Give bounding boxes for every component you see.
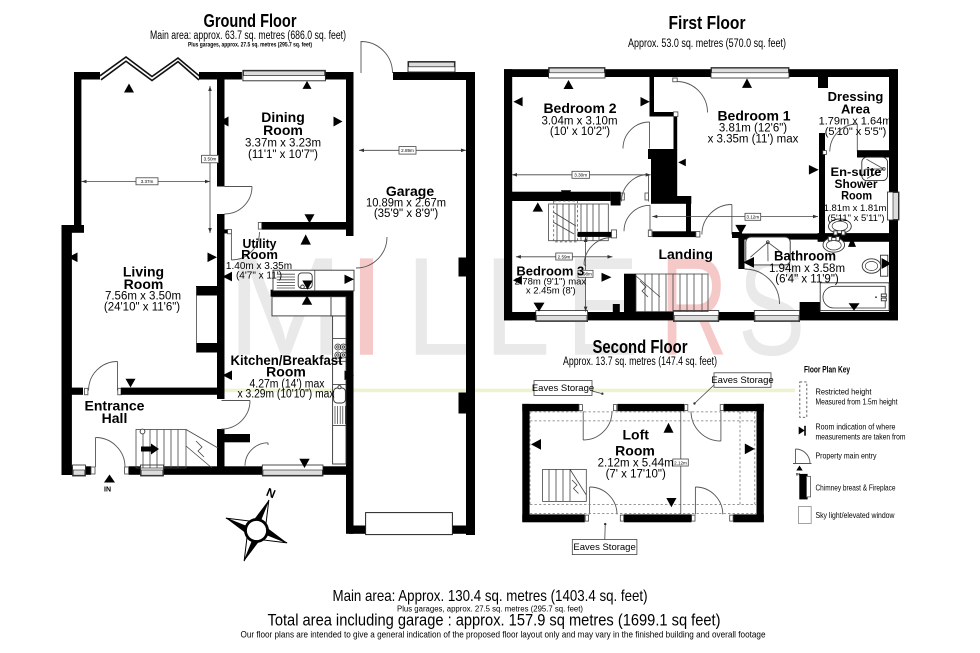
svg-text:(24'10" x 11'6"): (24'10" x 11'6") — [104, 302, 180, 314]
svg-text:Room indication of where: Room indication of where — [816, 422, 896, 432]
svg-text:2.12m: 2.12m — [674, 460, 687, 465]
svg-text:Shower: Shower — [835, 179, 879, 191]
svg-text:(10' x 10'2"): (10' x 10'2") — [550, 126, 610, 138]
svg-text:En-suite: En-suite — [831, 167, 882, 179]
svg-text:Hall: Hall — [102, 410, 128, 426]
svg-text:First Floor: First Floor — [669, 13, 746, 33]
svg-text:IN: IN — [104, 487, 111, 494]
svg-text:Area: Area — [841, 102, 871, 117]
svg-text:Our floor plans are intended t: Our floor plans are intended to give a g… — [241, 630, 766, 640]
svg-text:2.59m: 2.59m — [558, 254, 571, 259]
svg-text:(11'1" x 10'7"): (11'1" x 10'7") — [248, 149, 318, 161]
svg-text:Room: Room — [263, 122, 303, 138]
svg-text:Sky light/elevated window: Sky light/elevated window — [816, 510, 896, 520]
svg-text:x 3.35m (11') max: x 3.35m (11') max — [708, 134, 799, 146]
svg-text:Restricted height: Restricted height — [816, 387, 873, 397]
svg-text:3.50m: 3.50m — [204, 157, 217, 162]
svg-text:Eaves Storage: Eaves Storage — [573, 542, 635, 553]
svg-text:3.37m: 3.37m — [141, 179, 154, 184]
svg-text:Eaves Storage: Eaves Storage — [711, 375, 773, 386]
svg-text:Approx. 53.0 sq. metres (570.0: Approx. 53.0 sq. metres (570.0 sq. feet) — [628, 38, 786, 50]
svg-text:Ground Floor: Ground Floor — [204, 11, 297, 31]
svg-text:(5'10" x 5'5"): (5'10" x 5'5") — [825, 126, 887, 138]
svg-text:3.30m: 3.30m — [574, 173, 587, 178]
svg-text:Loft: Loft — [622, 427, 649, 443]
svg-text:2.89m: 2.89m — [401, 148, 414, 153]
svg-text:Property main entry: Property main entry — [816, 451, 878, 461]
svg-text:(4'7" x 11'): (4'7" x 11') — [236, 271, 282, 282]
svg-text:Bathroom: Bathroom — [774, 248, 836, 264]
svg-text:Main area: approx. 63.7 sq. me: Main area: approx. 63.7 sq. metres (686.… — [150, 30, 346, 42]
svg-text:Room: Room — [841, 191, 872, 203]
svg-text:Chimney breast & Fireplace: Chimney breast & Fireplace — [816, 483, 896, 493]
svg-text:Eaves Storage: Eaves Storage — [532, 383, 594, 394]
svg-text:Bedroom 2: Bedroom 2 — [543, 100, 616, 116]
svg-text:Room: Room — [266, 364, 306, 380]
svg-text:Landing: Landing — [658, 246, 712, 262]
svg-text:(6'4" x 11'9"): (6'4" x 11'9") — [775, 274, 839, 286]
svg-text:x 2.45m (8'): x 2.45m (8') — [526, 286, 576, 297]
svg-text:Second Floor: Second Floor — [593, 337, 688, 357]
svg-text:measurements are taken from: measurements are taken from — [816, 432, 906, 442]
svg-text:(35'9" x 8'9"): (35'9" x 8'9") — [374, 208, 439, 220]
svg-text:3.12m: 3.12m — [746, 215, 759, 220]
svg-text:Room: Room — [615, 443, 655, 459]
svg-text:Approx. 13.7 sq. metres (147.4: Approx. 13.7 sq. metres (147.4 sq. feet) — [563, 356, 717, 368]
svg-text:Bedroom 1: Bedroom 1 — [717, 108, 790, 124]
svg-text:Room: Room — [241, 247, 278, 262]
svg-text:Floor Plan Key: Floor Plan Key — [804, 365, 850, 375]
svg-text:L: L — [406, 228, 472, 385]
svg-text:3.37m x 3.23m: 3.37m x 3.23m — [245, 138, 321, 150]
svg-text:(5'11" x 5'11"): (5'11" x 5'11") — [827, 213, 884, 224]
svg-text:Plus garages, approx. 27.5 sq.: Plus garages, approx. 27.5 sq. metres (2… — [188, 43, 312, 49]
svg-text:Main area: Approx. 130.4 sq. m: Main area: Approx. 130.4 sq. metres (140… — [333, 588, 648, 605]
svg-text:(7' x 17'10"): (7' x 17'10") — [606, 469, 666, 481]
svg-text:x 3.29m (10'10") max: x 3.29m (10'10") max — [238, 389, 335, 401]
svg-text:Total area including garage :: Total area including garage : approx. 15… — [268, 611, 721, 630]
svg-text:Measured from 1.5m height: Measured from 1.5m height — [816, 397, 898, 407]
